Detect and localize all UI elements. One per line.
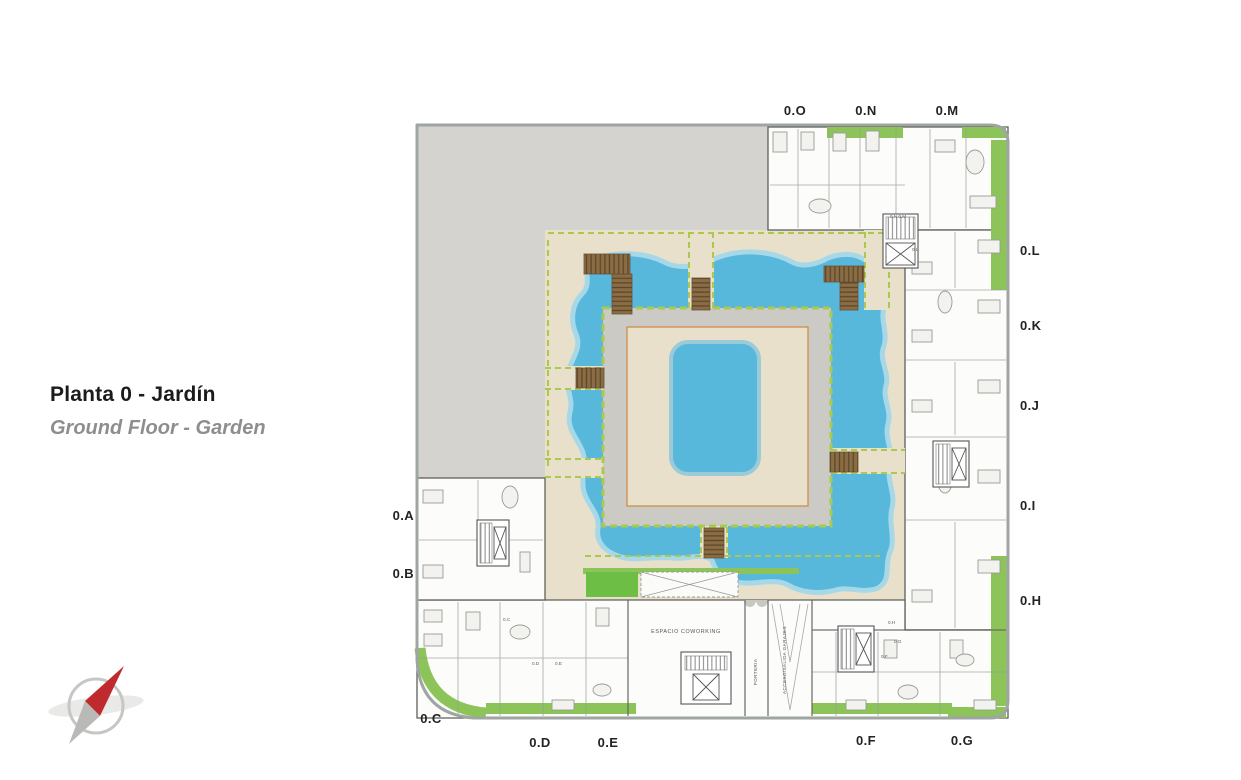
unit-label-0d: 0.D bbox=[529, 735, 550, 750]
unit-label-0b: 0.B bbox=[393, 566, 414, 581]
svg-text:0.G: 0.G bbox=[894, 639, 902, 644]
unit-label-0c: 0.C bbox=[420, 711, 442, 726]
unit-label-0o: 0.O bbox=[784, 103, 806, 118]
unit-label-0j: 0.J bbox=[1020, 398, 1039, 413]
unit-label-0f: 0.F bbox=[856, 733, 876, 748]
page: Planta 0 - Jardín Ground Floor - Garden bbox=[0, 0, 1241, 780]
unit-label-0l: 0.L bbox=[1020, 243, 1040, 258]
unit-label-0g: 0.G bbox=[951, 733, 973, 748]
floor-plan: ESPACIO COWORKING PORTERIA ACCESO/SALIDA… bbox=[0, 0, 1241, 780]
garages-label: ACCESO/SALIDA GARAJES bbox=[782, 626, 787, 694]
unit-label-0h: 0.H bbox=[1020, 593, 1041, 608]
svg-text:0.N 0.M: 0.N 0.M bbox=[890, 214, 906, 219]
svg-text:0.L: 0.L bbox=[912, 247, 919, 252]
svg-text:0.H: 0.H bbox=[888, 620, 895, 625]
lawn-patch bbox=[586, 572, 638, 597]
svg-text:0.D: 0.D bbox=[532, 661, 540, 666]
unit-label-0i: 0.I bbox=[1020, 498, 1036, 513]
svg-text:0.C: 0.C bbox=[503, 617, 511, 622]
skylight-grid bbox=[641, 572, 738, 597]
unit-label-0a: 0.A bbox=[393, 508, 415, 523]
unit-label-0k: 0.K bbox=[1020, 318, 1042, 333]
svg-text:0.E: 0.E bbox=[555, 661, 562, 666]
swimming-pool bbox=[671, 342, 759, 474]
svg-text:0.F: 0.F bbox=[881, 654, 888, 659]
coworking-label: ESPACIO COWORKING bbox=[651, 629, 721, 635]
unit-label-0m: 0.M bbox=[936, 103, 959, 118]
unit-label-0n: 0.N bbox=[855, 103, 876, 118]
unit-label-0e: 0.E bbox=[598, 735, 619, 750]
porteria-label: PORTERIA bbox=[753, 658, 758, 685]
